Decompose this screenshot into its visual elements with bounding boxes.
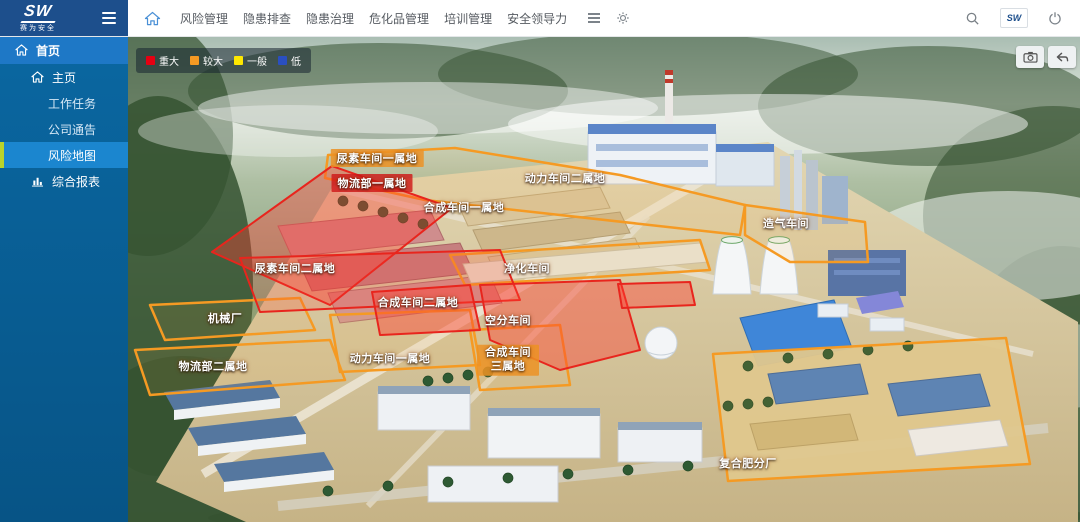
zone-label[interactable]: 物流部一属地 — [332, 174, 413, 192]
sidebar-item-label: 工作任务 — [48, 95, 96, 112]
legend-swatch — [190, 56, 199, 65]
home-icon — [14, 44, 28, 56]
legend-item-3: 低 — [278, 53, 301, 68]
nav-item-3[interactable]: 危化品管理 — [369, 10, 429, 27]
logo-block: SW 赛为安全 — [0, 0, 128, 36]
risk-map-area[interactable]: 重大较大一般低 尿素车间一属地物流部一属地合成车间一属地动力车间二属地造气车间尿… — [128, 36, 1080, 522]
legend-swatch — [278, 56, 287, 65]
sidebar-item-label: 综合报表 — [52, 173, 100, 190]
legend-item-0: 重大 — [146, 53, 179, 68]
sidebar-item-2[interactable]: 工作任务 — [0, 90, 128, 116]
topbar-right: SW — [965, 0, 1080, 36]
legend-swatch — [234, 56, 243, 65]
sidebar-item-0[interactable]: 首页 — [0, 36, 128, 64]
nav-item-0[interactable]: 风险管理 — [180, 10, 228, 27]
sidebar-item-label: 首页 — [36, 42, 60, 59]
legend-label: 低 — [291, 53, 301, 68]
sidebar-item-label: 风险地图 — [48, 147, 96, 164]
sidebar-item-label: 公司通告 — [48, 121, 96, 138]
sidebar-item-4[interactable]: 风险地图 — [0, 142, 128, 168]
app-logo: SW 赛为安全 — [20, 4, 56, 32]
nav-extra — [588, 11, 630, 25]
legend-label: 一般 — [247, 53, 267, 68]
top-bar: SW 赛为安全 风险管理隐患排查隐患治理危化品管理培训管理安全领导力 SW — [0, 0, 1080, 37]
power-logout-icon[interactable] — [1048, 11, 1062, 25]
house-icon — [30, 71, 44, 83]
avatar-logo-text: SW — [1007, 14, 1022, 23]
factory-3d-scene — [128, 36, 1080, 522]
nav-list-icon[interactable] — [588, 13, 600, 23]
zone-label[interactable]: 尿素车间一属地 — [331, 149, 424, 167]
screenshot-camera-button[interactable] — [1016, 46, 1044, 68]
nav-item-5[interactable]: 安全领导力 — [507, 10, 567, 27]
nav-items: 风险管理隐患排查隐患治理危化品管理培训管理安全领导力 — [180, 10, 567, 27]
sidebar-item-1[interactable]: 主页 — [0, 64, 128, 90]
chart-icon — [30, 175, 44, 187]
back-arrow-button[interactable] — [1048, 46, 1076, 68]
zone-label[interactable]: 物流部二属地 — [179, 358, 248, 374]
sidebar-item-3[interactable]: 公司通告 — [0, 116, 128, 142]
legend-swatch — [146, 56, 155, 65]
zone-label[interactable]: 合成车间二属地 — [378, 294, 459, 310]
sidebar-collapse-icon[interactable] — [102, 12, 116, 24]
zone-label[interactable]: 机械厂 — [208, 310, 243, 326]
zone-label[interactable]: 造气车间 — [763, 215, 809, 231]
sidebar-item-5[interactable]: 综合报表 — [0, 168, 128, 194]
sidebar-item-label: 主页 — [52, 69, 76, 86]
nav-item-1[interactable]: 隐患排查 — [243, 10, 291, 27]
sidebar: 首页主页工作任务公司通告风险地图综合报表 — [0, 36, 128, 522]
main-nav: 风险管理隐患排查隐患治理危化品管理培训管理安全领导力 — [128, 0, 965, 36]
logo-subtitle: 赛为安全 — [20, 25, 56, 32]
nav-home-icon[interactable] — [144, 11, 161, 26]
zone-label[interactable]: 动力车间二属地 — [525, 170, 606, 186]
legend-item-1: 较大 — [190, 53, 223, 68]
zone-label[interactable]: 合成车间一属地 — [424, 199, 505, 215]
zone-label[interactable]: 复合肥分厂 — [719, 455, 777, 471]
nav-item-4[interactable]: 培训管理 — [444, 10, 492, 27]
search-icon[interactable] — [965, 11, 980, 26]
legend-label: 较大 — [203, 53, 223, 68]
nav-item-2[interactable]: 隐患治理 — [306, 10, 354, 27]
logo-text: SW — [23, 4, 53, 20]
risk-legend: 重大较大一般低 — [136, 48, 311, 73]
legend-item-2: 一般 — [234, 53, 267, 68]
legend-label: 重大 — [159, 53, 179, 68]
zone-label[interactable]: 净化车间 — [504, 260, 550, 276]
zone-label[interactable]: 尿素车间二属地 — [255, 260, 336, 276]
zone-label[interactable]: 动力车间一属地 — [350, 350, 431, 366]
logo-underline — [20, 21, 55, 23]
zone-label[interactable]: 合成车间三属地 — [477, 345, 539, 376]
user-avatar[interactable]: SW — [1000, 8, 1028, 28]
zone-label[interactable]: 空分车间 — [485, 312, 531, 328]
settings-gear-icon[interactable] — [616, 11, 630, 25]
